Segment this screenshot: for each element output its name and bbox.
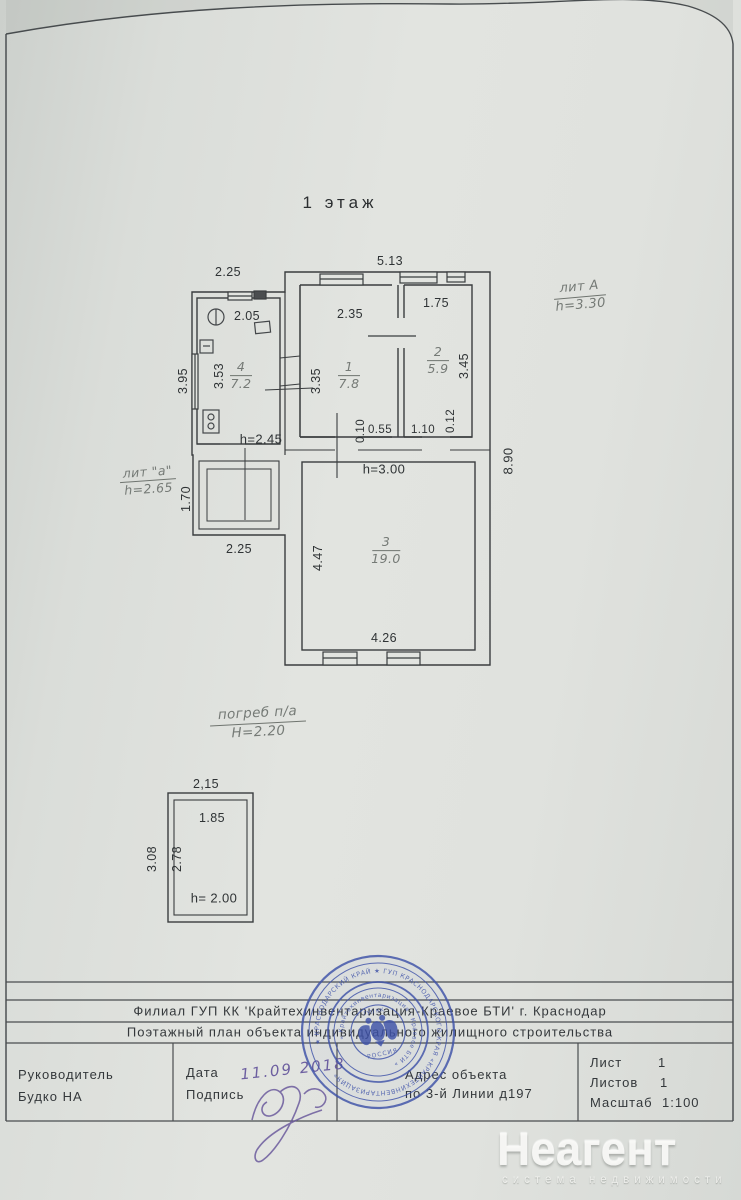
stamp-signature-layer: ★ КРАСНОДАРСКИЙ КРАЙ ★ ГУП КРАСНОДАРСКОГ… [0, 0, 741, 1200]
round-stamp: ★ КРАСНОДАРСКИЙ КРАЙ ★ ГУП КРАСНОДАРСКОГ… [288, 942, 468, 1122]
scanned-floor-plan-page: { "page": { "floor_title": "1 этаж" }, "… [0, 0, 741, 1200]
document-photo: 1 этаж 2.25 5.13 лит А h=3.30 2.05 2.35 … [0, 0, 741, 1200]
signature [252, 1087, 326, 1162]
